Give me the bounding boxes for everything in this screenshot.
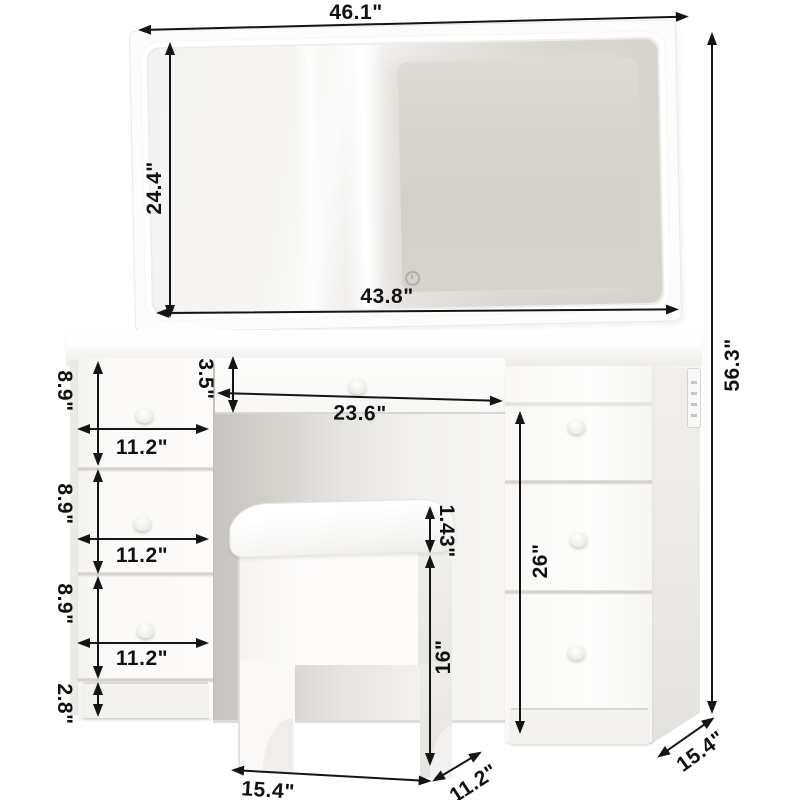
- dimension-line: [83, 538, 203, 541]
- arrowhead: [196, 534, 209, 544]
- arrowhead: [165, 42, 175, 55]
- arrowhead: [707, 701, 717, 714]
- dimension-line: [711, 38, 714, 708]
- arrowhead: [196, 424, 209, 434]
- dim-label-left-drawer1-width: 11.2": [116, 436, 168, 460]
- dim-label-center-drawer-height: 3.5": [193, 358, 217, 399]
- dimension-line: [223, 392, 497, 402]
- dimension-line: [519, 417, 522, 728]
- arrowhead: [93, 682, 103, 695]
- dim-arrow-mirror-width: [157, 309, 678, 313]
- dim-label-right-unit-height: 26": [529, 544, 553, 579]
- dimension-line: [144, 15, 683, 31]
- dimension-line: [429, 561, 432, 760]
- arrowhead: [93, 704, 103, 717]
- dim-label-left-drawer1-height: 8.9": [52, 370, 76, 411]
- arrowhead: [228, 356, 238, 369]
- arrowhead: [93, 561, 103, 574]
- arrowhead: [676, 12, 689, 22]
- arrowhead: [138, 25, 151, 35]
- arrowhead: [93, 666, 103, 679]
- dim-label-left-drawer3-height: 8.9": [52, 583, 76, 624]
- dimension-line: [97, 582, 100, 673]
- dim-arrow-overall-width: [139, 17, 688, 30]
- arrowhead: [93, 469, 103, 482]
- dimension-line: [169, 48, 172, 312]
- dim-label-mirror-height: 24.4": [143, 161, 167, 214]
- dim-label-desk-depth: 15.4": [672, 727, 729, 778]
- dim-label-stool-width: 15.4": [241, 777, 296, 800]
- dim-label-stool-height: 16": [432, 640, 456, 675]
- dimension-line: [83, 428, 203, 431]
- arrowhead: [77, 424, 90, 434]
- arrowhead: [93, 576, 103, 589]
- dimension-line: [162, 308, 673, 314]
- dim-arrow-knee-space-width: [218, 393, 502, 401]
- dimension-line: [83, 642, 203, 645]
- arrowhead: [468, 747, 484, 762]
- arrowhead: [156, 308, 169, 318]
- dim-label-left-base-height: 2.8": [52, 683, 76, 724]
- arrowhead: [515, 411, 525, 424]
- arrowhead: [666, 304, 679, 314]
- arrowhead: [228, 400, 238, 413]
- dimension-line: [97, 367, 100, 460]
- arrowhead: [515, 721, 525, 734]
- dim-label-left-drawer3-width: 11.2": [116, 647, 168, 671]
- arrowhead: [77, 534, 90, 544]
- dim-label-knee-space-width: 23.6": [333, 402, 387, 427]
- dim-label-overall-width: 46.1": [329, 1, 382, 25]
- dim-label-mirror-width: 43.8": [360, 285, 413, 309]
- arrowhead: [425, 555, 435, 568]
- dimension-line: [97, 475, 100, 568]
- arrowhead: [707, 32, 717, 45]
- arrowhead: [425, 753, 435, 766]
- arrowhead: [77, 638, 90, 648]
- dim-label-overall-height: 56.3": [721, 338, 745, 391]
- dim-label-left-drawer2-width: 11.2": [116, 544, 168, 568]
- arrowhead: [490, 396, 503, 406]
- dim-label-left-drawer2-height: 8.9": [52, 483, 76, 524]
- dimension-diagram: 46.1"24.4"43.8"3.5"23.6"8.9"8.9"8.9"2.8"…: [0, 0, 800, 800]
- dimension-annotations: 46.1"24.4"43.8"3.5"23.6"8.9"8.9"8.9"2.8"…: [0, 0, 800, 800]
- arrowhead: [217, 388, 230, 398]
- arrowhead: [196, 638, 209, 648]
- arrowhead: [93, 453, 103, 466]
- arrowhead: [93, 361, 103, 374]
- arrowhead: [231, 765, 245, 776]
- dim-label-cushion-thickness: 1.43": [434, 504, 458, 557]
